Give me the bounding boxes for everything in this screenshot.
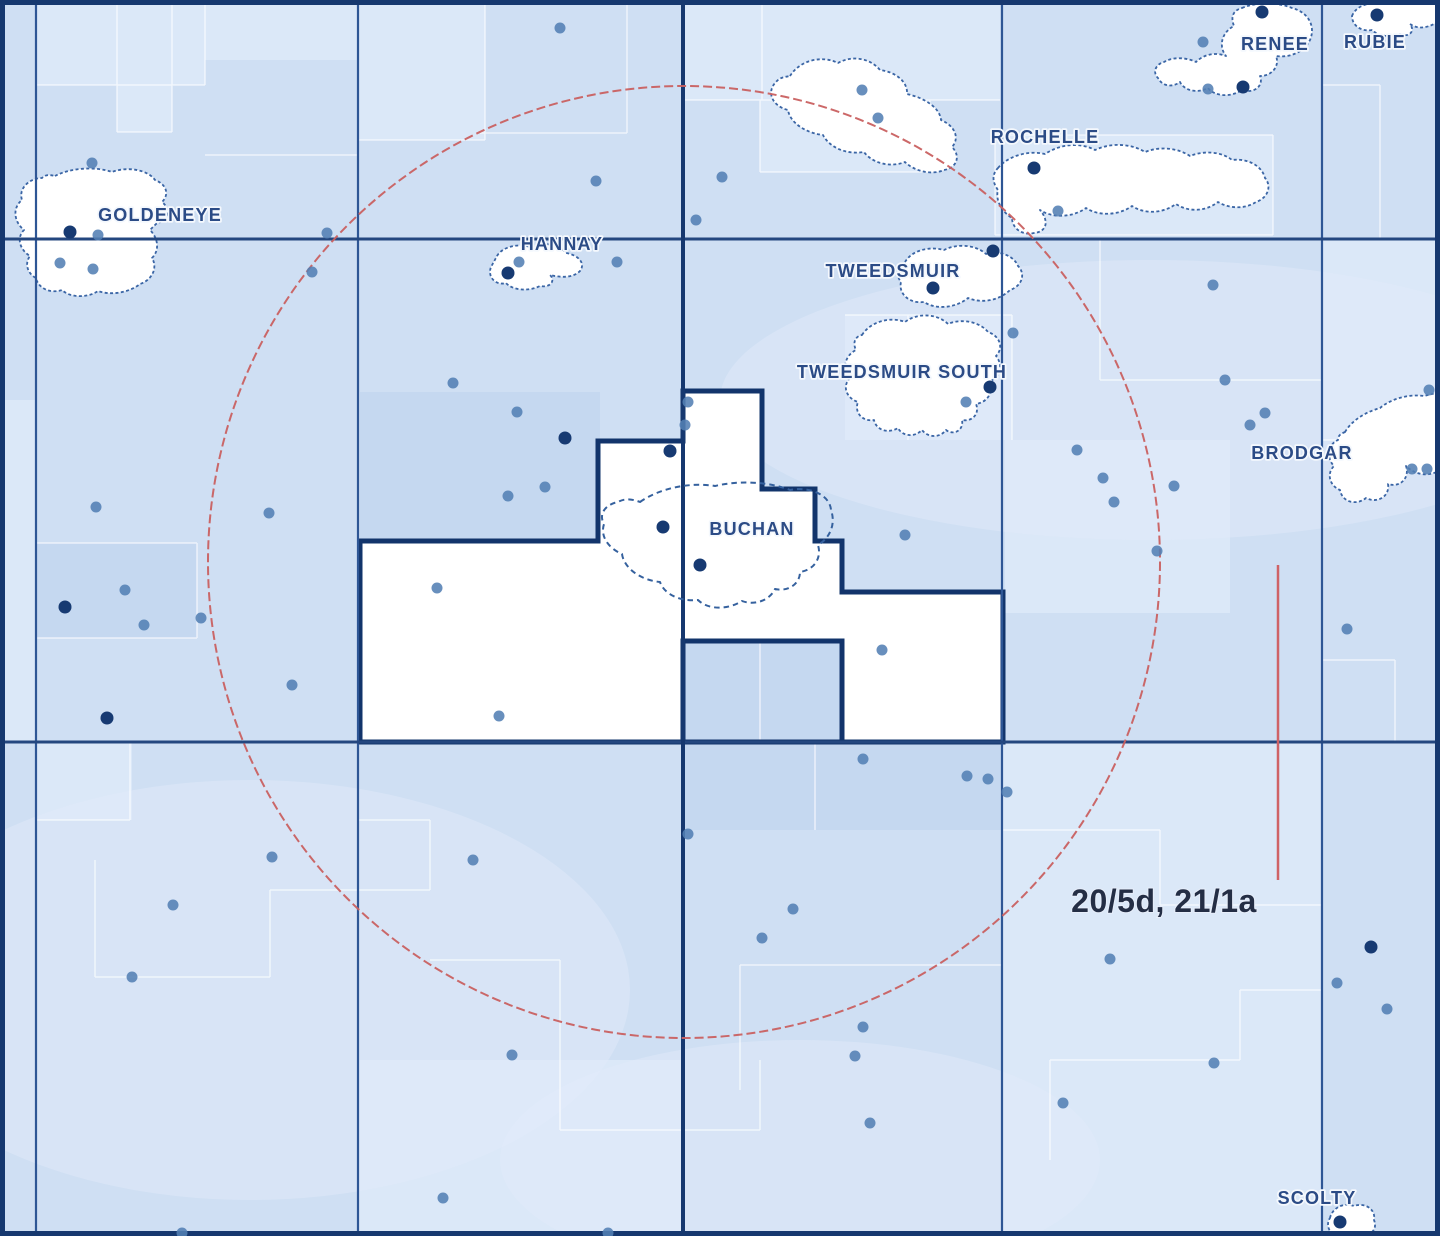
well-marker xyxy=(1407,464,1418,475)
well-marker xyxy=(1208,280,1219,291)
well-marker xyxy=(983,774,994,785)
well-marker xyxy=(540,482,551,493)
well-marker xyxy=(448,378,459,389)
well-marker xyxy=(91,502,102,513)
well-marker xyxy=(264,508,275,519)
well-marker xyxy=(120,585,131,596)
well-marker xyxy=(683,829,694,840)
well-marker xyxy=(494,711,505,722)
well-marker xyxy=(1105,954,1116,965)
well-marker xyxy=(1332,978,1343,989)
field-shape-rubie xyxy=(1352,2,1440,36)
well-marker xyxy=(717,172,728,183)
well-marker xyxy=(1203,84,1214,95)
well-marker xyxy=(857,85,868,96)
well-marker xyxy=(267,852,278,863)
field-shape-goldeneye xyxy=(15,169,167,297)
well-marker xyxy=(788,904,799,915)
field-label-rubie: RUBIE xyxy=(1344,32,1406,52)
offshore-licence-map: GOLDENEYEHANNAYROCHELLERENEERUBIETWEEDSM… xyxy=(0,0,1440,1236)
well-marker xyxy=(961,397,972,408)
well-marker-dark xyxy=(1256,6,1269,19)
well-marker-dark xyxy=(1371,9,1384,22)
well-marker xyxy=(287,680,298,691)
well-marker xyxy=(1424,385,1435,396)
well-marker xyxy=(93,230,104,241)
well-marker-dark xyxy=(927,282,940,295)
licence-block-label: 20/5d, 21/1a xyxy=(1071,883,1257,919)
well-marker xyxy=(87,158,98,169)
well-marker xyxy=(1422,464,1433,475)
well-marker xyxy=(1209,1058,1220,1069)
well-marker xyxy=(1220,375,1231,386)
well-marker-dark xyxy=(987,245,1000,258)
well-marker-dark xyxy=(559,432,572,445)
well-marker-dark xyxy=(1334,1216,1347,1229)
well-marker xyxy=(1072,445,1083,456)
map-canvas: GOLDENEYEHANNAYROCHELLERENEERUBIETWEEDSM… xyxy=(0,0,1440,1236)
well-marker-dark xyxy=(657,521,670,534)
well-marker xyxy=(127,972,138,983)
well-marker-dark xyxy=(1365,941,1378,954)
well-marker xyxy=(555,23,566,34)
well-marker xyxy=(1198,37,1209,48)
field-label-hannay: HANNAY xyxy=(521,234,604,254)
well-marker xyxy=(432,583,443,594)
well-marker xyxy=(1382,1004,1393,1015)
field-label-rochelle: ROCHELLE xyxy=(991,127,1100,147)
well-marker xyxy=(512,407,523,418)
well-marker xyxy=(1245,420,1256,431)
well-marker xyxy=(877,645,888,656)
well-marker xyxy=(1008,328,1019,339)
well-marker xyxy=(591,176,602,187)
well-marker xyxy=(757,933,768,944)
well-marker-dark xyxy=(101,712,114,725)
well-marker xyxy=(322,228,333,239)
well-marker xyxy=(1002,787,1013,798)
well-marker-dark xyxy=(984,381,997,394)
field-label-tweedsmuir: TWEEDSMUIR xyxy=(826,261,961,281)
well-marker xyxy=(612,257,623,268)
well-marker xyxy=(900,530,911,541)
field-label-scolty: SCOLTY xyxy=(1278,1188,1357,1208)
well-marker xyxy=(503,491,514,502)
well-marker-dark xyxy=(1028,162,1041,175)
field-label-renee: RENEE xyxy=(1241,34,1309,54)
well-marker xyxy=(55,258,66,269)
well-marker xyxy=(88,264,99,275)
well-marker-dark xyxy=(59,601,72,614)
well-marker-dark xyxy=(1237,81,1250,94)
well-marker xyxy=(307,267,318,278)
well-marker xyxy=(168,900,179,911)
well-marker xyxy=(196,613,207,624)
well-marker xyxy=(850,1051,861,1062)
well-marker xyxy=(1098,473,1109,484)
well-marker xyxy=(858,754,869,765)
well-marker xyxy=(514,257,525,268)
field-label-buchan: BUCHAN xyxy=(709,519,794,539)
well-marker xyxy=(691,215,702,226)
field-label-tweedsmuir-south: TWEEDSMUIR SOUTH xyxy=(797,362,1007,382)
field-label-brodgar: BRODGAR xyxy=(1251,443,1352,463)
well-marker xyxy=(507,1050,518,1061)
well-marker xyxy=(1342,624,1353,635)
well-marker xyxy=(1109,497,1120,508)
well-marker xyxy=(438,1193,449,1204)
well-marker-dark xyxy=(502,267,515,280)
field-label-goldeneye: GOLDENEYE xyxy=(98,205,222,225)
well-marker xyxy=(1169,481,1180,492)
well-marker xyxy=(873,113,884,124)
well-marker xyxy=(683,397,694,408)
well-marker xyxy=(1058,1098,1069,1109)
well-marker xyxy=(858,1022,869,1033)
well-marker-dark xyxy=(64,226,77,239)
well-marker xyxy=(468,855,479,866)
well-marker-dark xyxy=(664,445,677,458)
well-marker-dark xyxy=(694,559,707,572)
well-marker xyxy=(680,420,691,431)
well-marker xyxy=(962,771,973,782)
well-marker xyxy=(177,1228,188,1236)
well-marker xyxy=(865,1118,876,1129)
well-marker xyxy=(1053,206,1064,217)
well-marker xyxy=(139,620,150,631)
well-marker xyxy=(1152,546,1163,557)
well-marker xyxy=(1260,408,1271,419)
